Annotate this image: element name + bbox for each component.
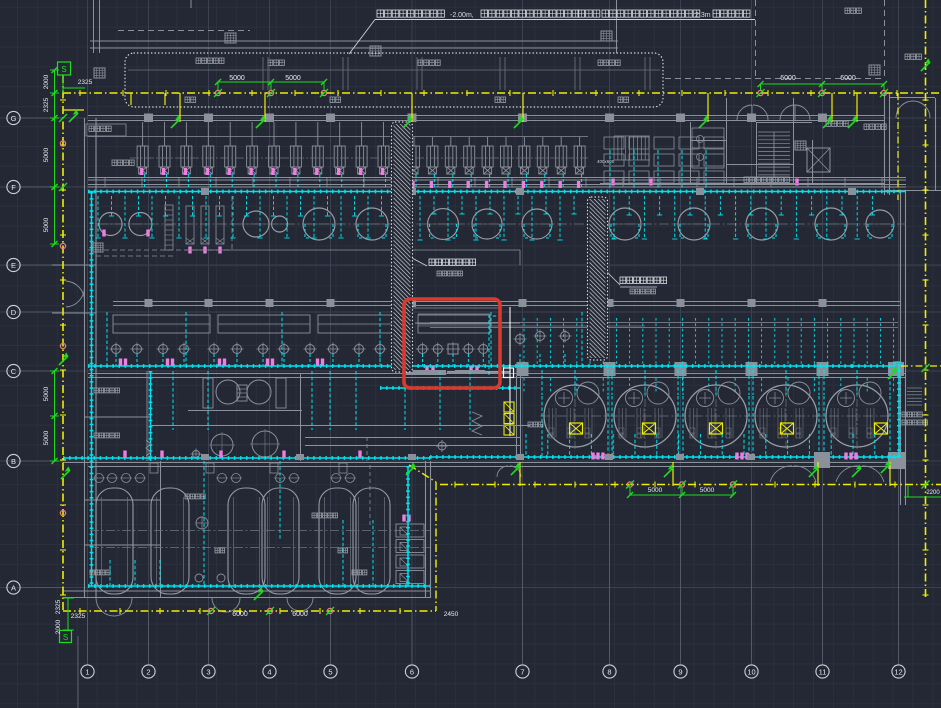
svg-text:6: 6 <box>410 667 414 676</box>
svg-text:2: 2 <box>146 667 150 676</box>
svg-text:9: 9 <box>678 667 682 676</box>
svg-text:5000: 5000 <box>648 487 663 494</box>
svg-text:2.3m: 2.3m <box>695 12 711 19</box>
svg-text:12: 12 <box>894 667 902 676</box>
svg-text:E: E <box>11 261 16 270</box>
svg-text:2200: 2200 <box>926 490 940 496</box>
svg-text:10: 10 <box>747 667 755 676</box>
svg-text:8: 8 <box>607 667 611 676</box>
svg-text:A: A <box>11 583 16 592</box>
svg-text:11: 11 <box>819 667 827 676</box>
svg-text:5000: 5000 <box>43 147 50 162</box>
svg-text:2000: 2000 <box>43 74 50 89</box>
svg-text:2325: 2325 <box>71 613 86 620</box>
svg-text:5000: 5000 <box>43 386 50 401</box>
svg-text:B: B <box>11 457 16 466</box>
svg-text:5000: 5000 <box>700 487 715 494</box>
svg-text:4: 4 <box>267 667 271 676</box>
svg-text:5000: 5000 <box>229 75 245 82</box>
svg-text:400x600: 400x600 <box>597 159 615 164</box>
svg-text:5: 5 <box>328 667 332 676</box>
svg-text:2000: 2000 <box>55 619 62 634</box>
svg-text:F: F <box>11 183 16 192</box>
svg-text:2325: 2325 <box>55 599 62 614</box>
svg-text:G: G <box>11 114 17 123</box>
svg-text:3: 3 <box>206 667 210 676</box>
svg-text:5000: 5000 <box>43 217 50 232</box>
svg-text:2325: 2325 <box>43 97 50 112</box>
svg-text:S: S <box>61 65 66 74</box>
svg-text:6000: 6000 <box>780 75 796 82</box>
svg-text:1: 1 <box>85 667 89 676</box>
svg-text:-2.00m,: -2.00m, <box>450 12 474 19</box>
svg-text:6000: 6000 <box>840 75 856 82</box>
svg-text:7: 7 <box>520 667 524 676</box>
svg-text:C: C <box>11 367 17 376</box>
svg-text:2325: 2325 <box>78 79 93 86</box>
svg-text:6000: 6000 <box>232 611 248 618</box>
svg-text:5000: 5000 <box>43 430 50 445</box>
svg-text:5000: 5000 <box>285 75 301 82</box>
svg-text:2450: 2450 <box>444 611 459 618</box>
svg-text:D: D <box>11 308 17 317</box>
svg-text:6000: 6000 <box>292 611 308 618</box>
svg-text:S: S <box>63 633 68 642</box>
